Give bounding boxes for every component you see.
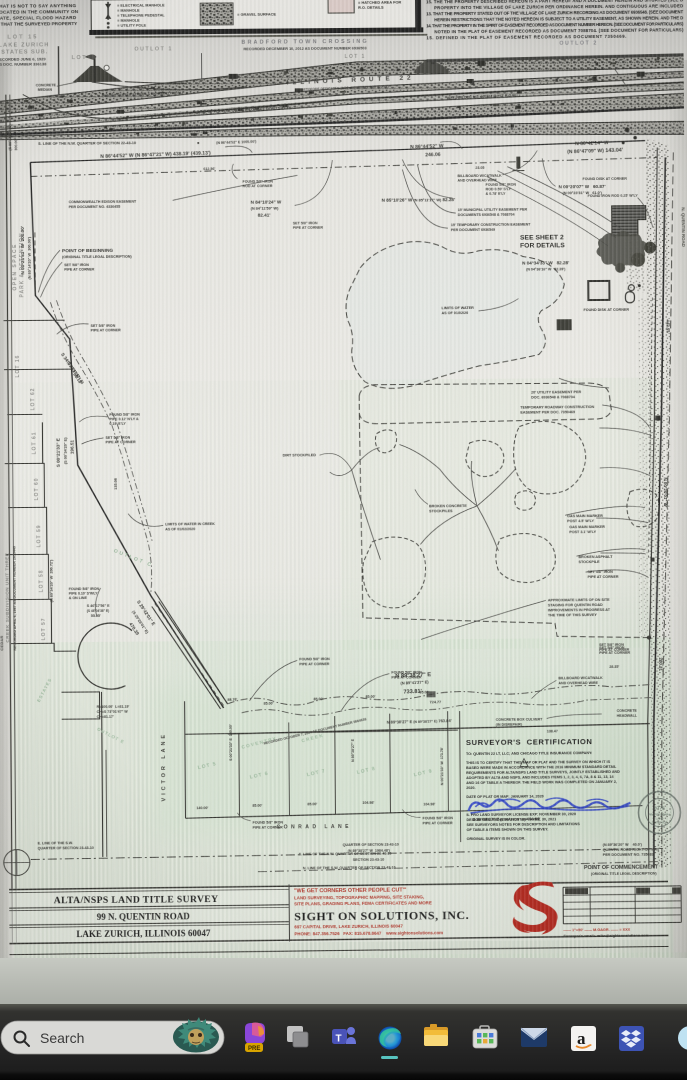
svg-text:a: a (577, 1029, 586, 1048)
svg-text:PRE: PRE (248, 1046, 260, 1052)
svg-text:Search: Search (40, 1030, 84, 1046)
svg-text:T: T (336, 1034, 342, 1045)
